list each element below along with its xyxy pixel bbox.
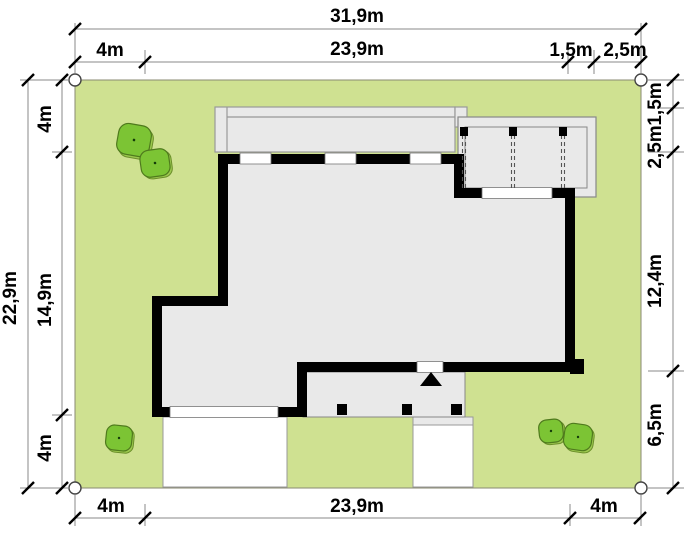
dim-left-bottom: 4m [35,434,56,461]
window-bottom [170,407,278,418]
carport [458,117,596,197]
window-carport-wall [482,188,552,199]
window-top-2 [325,153,356,164]
tree-icon [538,418,566,446]
dim-top-left: 4m [96,40,123,61]
dim-right-middle: 12,4m [645,254,666,308]
corner-circle-icon [69,482,81,494]
window-top-3 [410,153,441,164]
dim-top-seg1: 1,5m [549,40,592,61]
carport-post-icon [559,127,567,136]
roof-overhang-band [215,107,467,152]
dim-right-top: 1,5m [645,82,666,125]
walkway [413,425,473,487]
dim-bottom-center: 23,9m [330,496,384,517]
site-plan-page: 31,9m 4m 23,9m 1,5m 2,5m 4m 23,9m 4m 22,… [0,0,684,541]
dim-bottom-left: 4m [97,496,124,517]
carport-post-icon [509,127,517,136]
dim-left-top: 4m [35,105,56,132]
site-plan-drawing: 31,9m 4m 23,9m 1,5m 2,5m 4m 23,9m 4m 22,… [0,0,684,541]
dim-top-seg2: 2,5m [603,40,646,61]
entrance-porch [303,372,465,417]
dim-right-upper: 2,5m [645,125,666,168]
dim-left-total: 22,9m [0,271,21,325]
corner-circle-icon [635,482,647,494]
tree-icon [139,147,174,180]
driveway [163,417,287,487]
wall-stub [570,359,584,374]
dim-left-middle: 14,9m [35,273,56,327]
dim-top-total: 31,9m [330,6,384,27]
window-top-1 [240,153,271,164]
corner-circle-icon [69,74,81,86]
dim-top-center: 23,9m [330,39,384,60]
tree-icon [105,424,136,454]
dim-right-lower: 6,5m [645,403,666,446]
dim-bottom-right: 4m [590,496,617,517]
entrance-door [417,362,443,373]
carport-post-icon [460,127,468,136]
walkway-step [413,417,473,425]
